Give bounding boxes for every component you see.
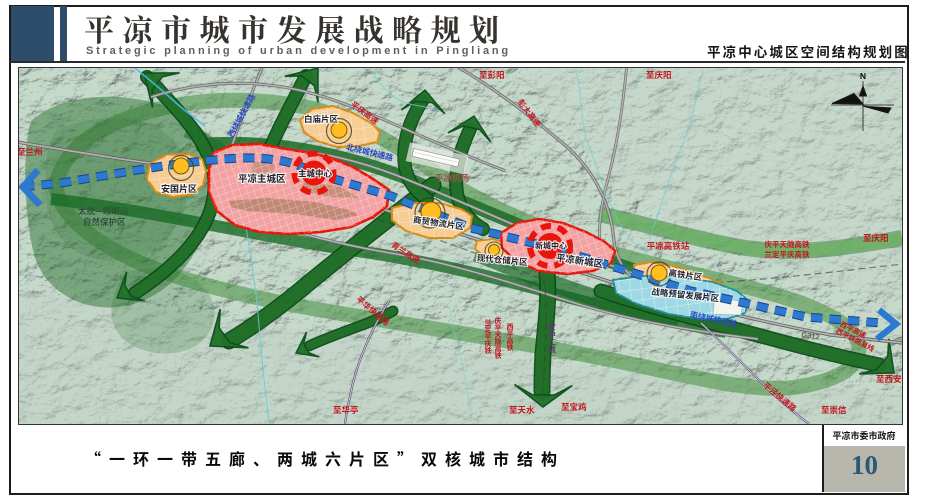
svg-text:至西安: 至西安 [876,373,902,385]
svg-text:至庆阳: 至庆阳 [646,69,672,81]
svg-text:宝中二线: 宝中二线 [547,322,558,354]
svg-text:白庙片区: 白庙片区 [304,113,339,125]
svg-text:庆平天陇高铁: 庆平天陇高铁 [493,316,503,360]
svg-text:兰定平庆高铁: 兰定平庆高铁 [765,249,810,260]
svg-text:西平高铁: 西平高铁 [505,323,515,352]
svg-text:兰定平庆铁: 兰定平庆铁 [483,318,493,355]
svg-text:平凉高铁站: 平凉高铁站 [647,240,690,252]
svg-text:至华亭: 至华亭 [333,404,359,416]
svg-text:自然保护区: 自然保护区 [83,216,126,228]
svg-text:N: N [860,70,866,82]
svg-text:新城中心: 新城中心 [535,241,567,252]
svg-text:至彭阳: 至彭阳 [479,69,505,81]
svg-text:至崇信: 至崇信 [821,404,847,416]
svg-text:至兰州: 至兰州 [19,146,43,158]
svg-text:平凉机场: 平凉机场 [435,172,470,184]
svg-text:至宝鸡: 至宝鸡 [561,401,587,413]
svg-text:至庆阳: 至庆阳 [863,232,889,244]
svg-text:安国片区: 安国片区 [161,182,197,195]
svg-text:至天水: 至天水 [509,404,535,416]
svg-text:平凉主城区: 平凉主城区 [238,171,286,185]
svg-text:主城中心: 主城中心 [298,168,333,180]
